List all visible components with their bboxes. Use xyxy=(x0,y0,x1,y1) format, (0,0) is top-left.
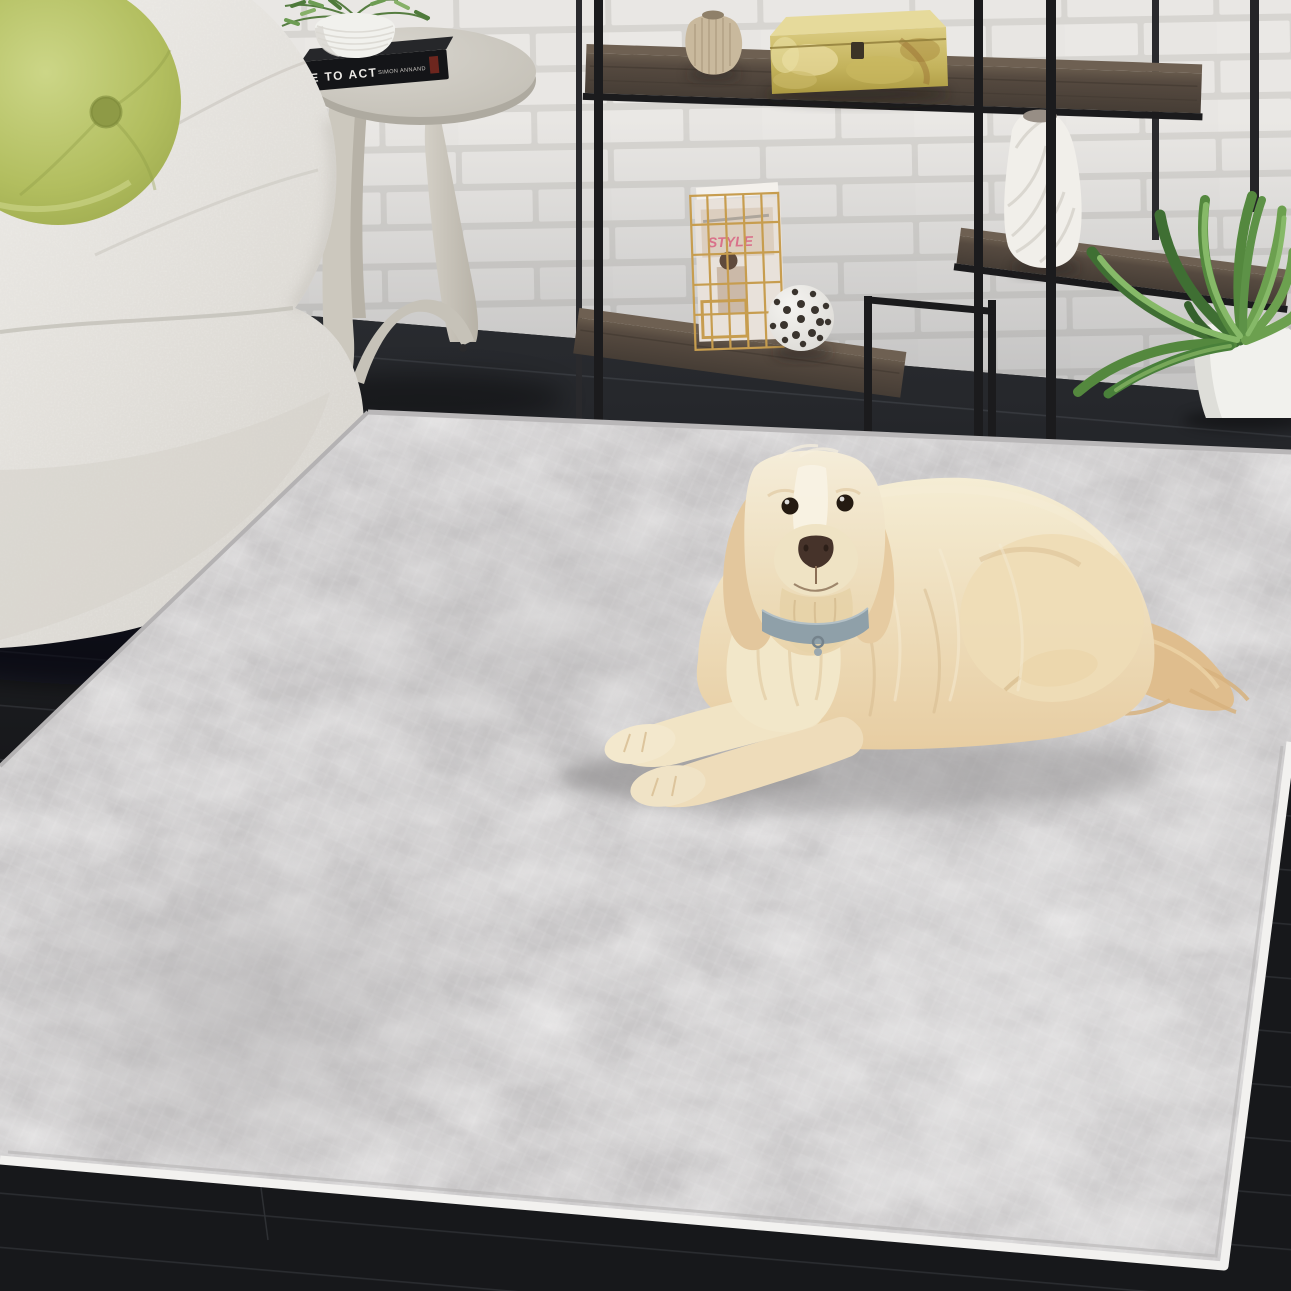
dog-eye-left xyxy=(782,498,799,515)
shelf-back-post xyxy=(1152,0,1159,240)
living-room-photo: STYLE xyxy=(0,0,1291,1291)
decorative-box xyxy=(766,10,950,103)
magazine-cover-text: STYLE xyxy=(708,233,754,251)
dog-eye-right xyxy=(837,495,854,512)
magazine-figure xyxy=(717,266,749,315)
box-clasp xyxy=(851,42,864,59)
shelf-back-post xyxy=(1250,0,1259,212)
collar-tag xyxy=(814,648,822,656)
book-publisher-mark xyxy=(429,56,439,74)
